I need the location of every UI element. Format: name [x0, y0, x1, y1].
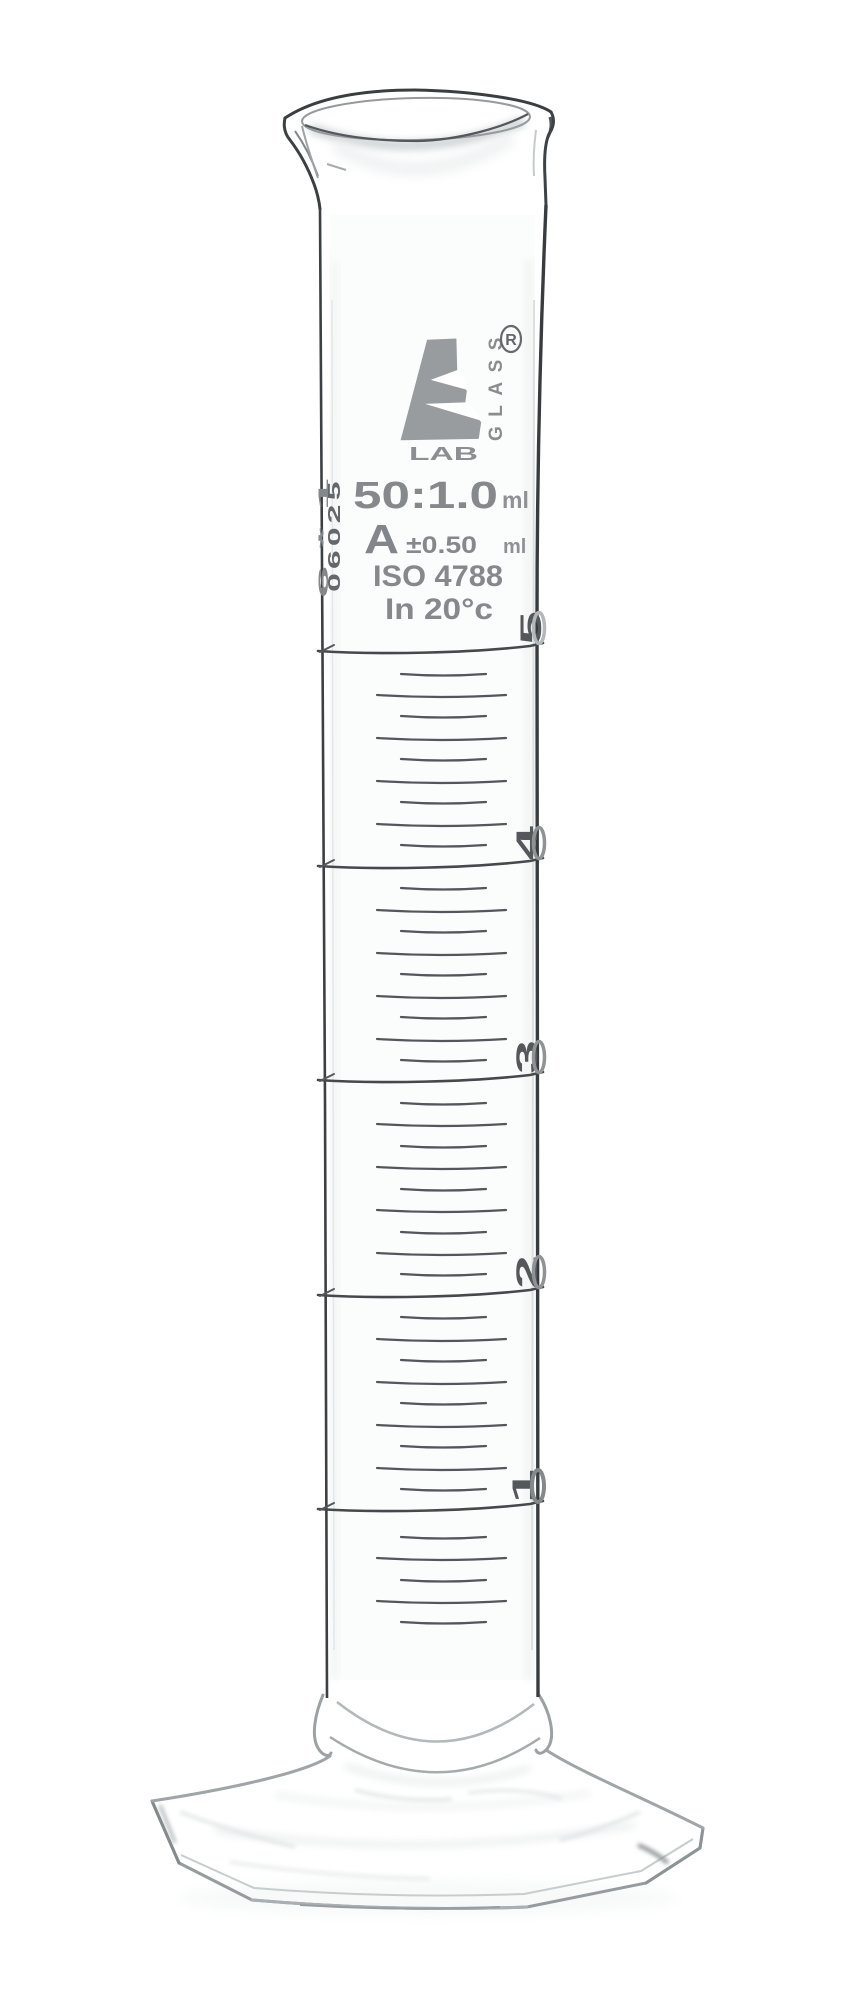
svg-text:In 20°c: In 20°c	[385, 593, 493, 626]
svg-text:ISO 4788: ISO 4788	[373, 560, 503, 593]
svg-text:GLASS: GLASS	[486, 328, 507, 441]
svg-text:6 * 1: 6 * 1	[315, 477, 331, 598]
svg-text:A: A	[364, 516, 399, 562]
svg-text:ml: ml	[502, 487, 529, 513]
svg-text:ml: ml	[503, 536, 526, 558]
svg-text:R: R	[505, 332, 517, 349]
svg-text:4: 4	[511, 825, 544, 860]
svg-text:±0.50: ±0.50	[406, 532, 477, 559]
svg-text:3: 3	[511, 1040, 544, 1074]
svg-text:50:1.0: 50:1.0	[353, 475, 498, 517]
svg-text:LAB: LAB	[409, 444, 478, 464]
svg-text:2: 2	[511, 1255, 544, 1289]
